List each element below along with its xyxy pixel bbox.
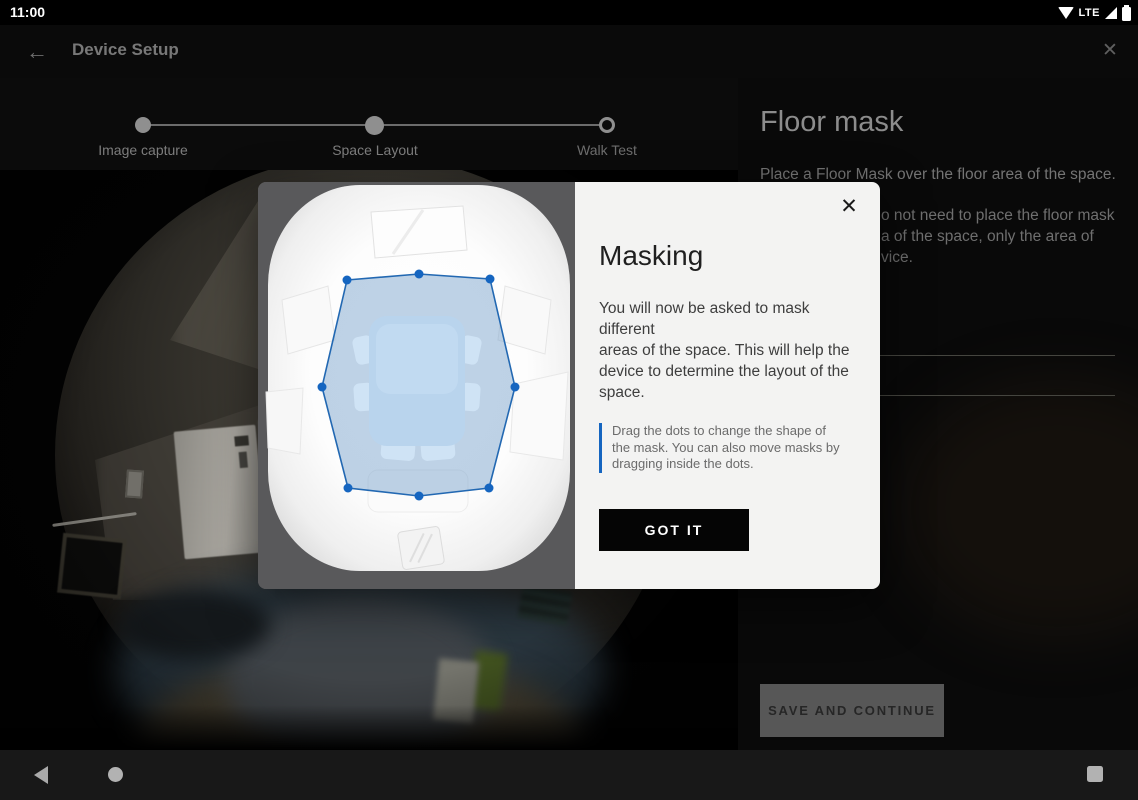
panel-description-line: vice.	[881, 249, 913, 267]
side-table	[397, 526, 444, 570]
mask-drag-dot[interactable]	[486, 275, 495, 284]
nav-home-icon[interactable]	[108, 767, 123, 782]
mask-drag-dot[interactable]	[415, 492, 424, 501]
battery-icon	[1122, 7, 1131, 21]
android-nav-bar	[0, 750, 1138, 800]
step-dot-walk-test[interactable]	[599, 117, 615, 133]
step-dot-space-layout[interactable]	[365, 116, 384, 135]
lte-label: LTE	[1079, 7, 1100, 19]
dialog-content: ✕ Masking You will now be asked to mask …	[575, 182, 880, 589]
mask-drag-dot[interactable]	[344, 484, 353, 493]
status-bar: 11:00 LTE	[0, 0, 1138, 25]
mask-drag-dot[interactable]	[511, 383, 520, 392]
dialog-body-text: You will now be asked to mask different …	[599, 298, 858, 403]
step-dot-image-capture[interactable]	[135, 117, 151, 133]
step-label-space-layout: Space Layout	[332, 142, 418, 158]
clock: 11:00	[10, 4, 45, 20]
got-it-button[interactable]: GOT IT	[599, 509, 749, 551]
nav-recents-icon[interactable]	[1087, 766, 1103, 782]
device-setup-screen: 11:00 LTE ← Device Setup ✕ Image capture…	[0, 0, 1138, 800]
back-arrow-icon[interactable]: ←	[20, 35, 54, 69]
save-and-continue-button[interactable]: SAVE AND CONTINUE	[760, 684, 944, 737]
cell-signal-icon	[1105, 7, 1117, 19]
step-label-image-capture: Image capture	[98, 142, 188, 158]
status-icons: LTE	[1058, 0, 1131, 25]
dialog-title: Masking	[599, 240, 858, 272]
panel-description-line: o not need to place the floor mask	[881, 207, 1115, 225]
window-left-mid	[266, 388, 303, 454]
step-label-walk-test: Walk Test	[577, 142, 637, 158]
dialog-tip-note: Drag the dots to change the shape of the…	[599, 423, 858, 473]
mask-drag-dot[interactable]	[485, 484, 494, 493]
dialog-close-icon[interactable]: ✕	[834, 192, 864, 222]
mask-drag-dot[interactable]	[415, 270, 424, 279]
page-title: Device Setup	[72, 40, 179, 60]
room-illustration	[258, 182, 575, 589]
close-icon[interactable]: ✕	[1096, 37, 1124, 65]
panel-description-line: a of the space, only the area of	[881, 228, 1094, 246]
panel-title: Floor mask	[760, 106, 903, 139]
mask-drag-dot[interactable]	[318, 383, 327, 392]
mask-drag-dot[interactable]	[343, 276, 352, 285]
nav-back-icon[interactable]	[34, 766, 48, 784]
app-bar: ← Device Setup ✕	[0, 25, 1138, 78]
masking-dialog: ✕ Masking You will now be asked to mask …	[258, 182, 880, 589]
wifi-icon	[1058, 7, 1074, 19]
setup-stepper: Image capture Space Layout Walk Test	[0, 78, 738, 170]
